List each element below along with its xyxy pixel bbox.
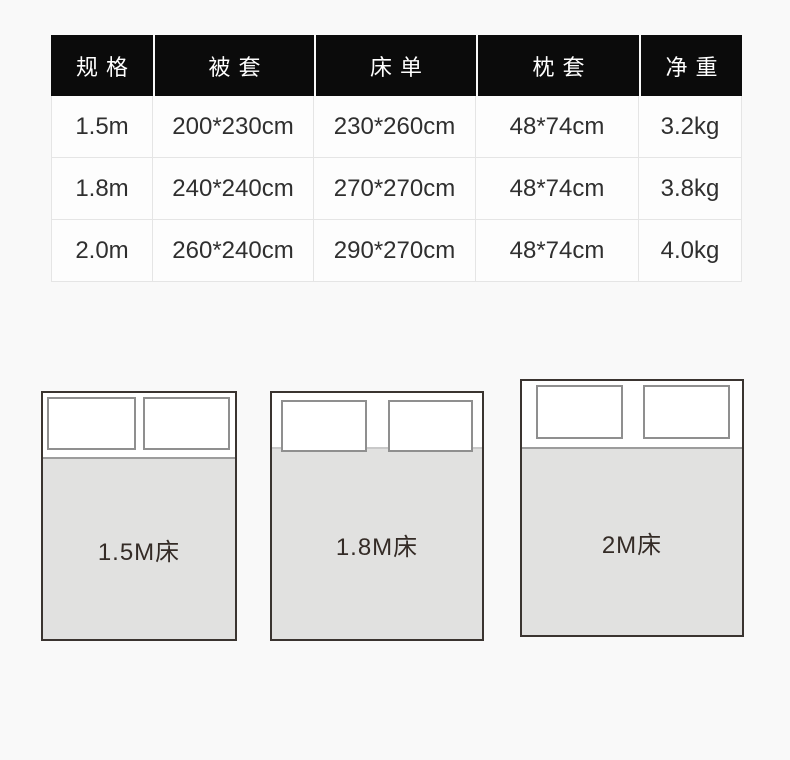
table-cell: 4.0kg: [639, 220, 742, 282]
size-spec-table: 规格 被套 床单 枕套 净重 1.5m 200*230cm 230*260cm …: [51, 35, 742, 282]
table-header-bed-sheet: 床单: [314, 35, 476, 96]
table-cell: 290*270cm: [314, 220, 476, 282]
bed-label: 2M床: [602, 525, 662, 560]
size-chart-canvas: 规格 被套 床单 枕套 净重 1.5m 200*230cm 230*260cm …: [0, 0, 790, 760]
mattress-area: 2M床: [522, 447, 742, 635]
pillow: [536, 385, 623, 439]
pillow: [388, 400, 473, 452]
table-header-net-weight: 净重: [639, 35, 742, 96]
table-cell: 260*240cm: [153, 220, 314, 282]
pillow: [281, 400, 367, 452]
table-header-duvet-cover: 被套: [153, 35, 314, 96]
table-cell: 48*74cm: [476, 158, 639, 220]
table-cell: 1.5m: [51, 96, 153, 158]
bed-diagram-1-8m: 1.8M床: [270, 391, 484, 641]
table-header-spec: 规格: [51, 35, 153, 96]
table-header-pillowcase: 枕套: [476, 35, 639, 96]
table-cell: 48*74cm: [476, 220, 639, 282]
mattress-area: 1.8M床: [272, 447, 482, 639]
mattress-area: 1.5M床: [43, 457, 235, 639]
pillow: [143, 397, 230, 450]
table-cell: 1.8m: [51, 158, 153, 220]
bed-label: 1.5M床: [98, 532, 180, 567]
bed-diagram-1-5m: 1.5M床: [41, 391, 237, 641]
table-cell: 2.0m: [51, 220, 153, 282]
table-cell: 240*240cm: [153, 158, 314, 220]
table-cell: 200*230cm: [153, 96, 314, 158]
table-cell: 270*270cm: [314, 158, 476, 220]
table-cell: 48*74cm: [476, 96, 639, 158]
table-cell: 230*260cm: [314, 96, 476, 158]
bed-label: 1.8M床: [336, 527, 418, 562]
pillow: [643, 385, 730, 439]
bed-diagram-2m: 2M床: [520, 379, 744, 637]
table-cell: 3.2kg: [639, 96, 742, 158]
table-cell: 3.8kg: [639, 158, 742, 220]
pillow: [47, 397, 136, 450]
